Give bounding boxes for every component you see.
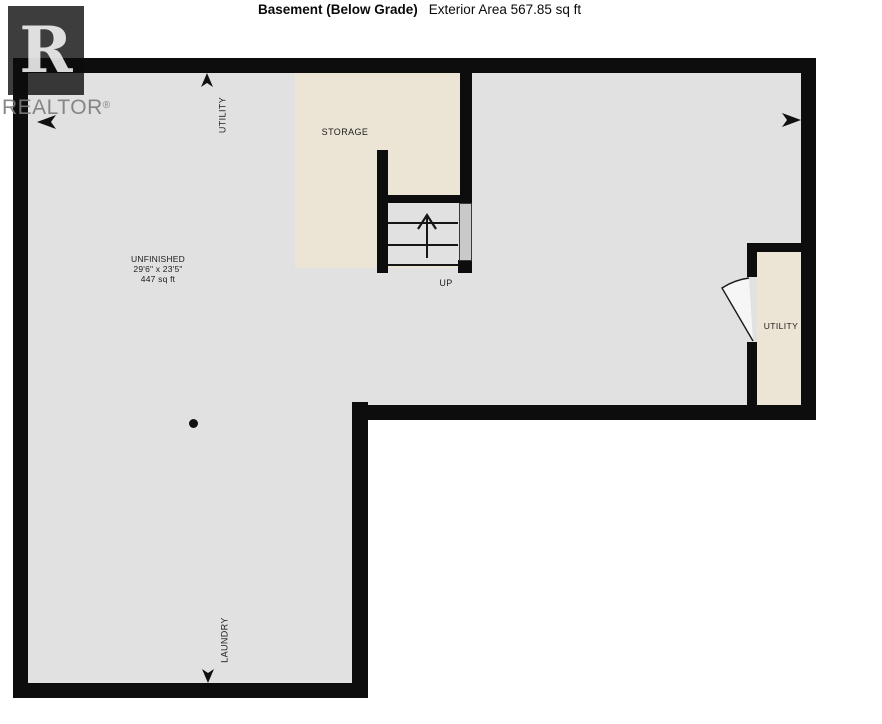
label-utility-right: UTILITY: [759, 321, 803, 332]
label-unfinished: UNFINISHED 29'6" x 23'5" 447 sq ft: [93, 254, 223, 284]
plan-level-title: Basement (Below Grade): [258, 2, 418, 17]
unfinished-room-name: UNFINISHED: [93, 254, 223, 264]
unfinished-room-area: 447 sq ft: [93, 274, 223, 284]
door-swing-icon: [690, 260, 810, 360]
realtor-logo: R: [8, 6, 84, 95]
floorplan-canvas: { "title": { "name": "Basement (Below Gr…: [0, 0, 882, 724]
wall-right: [801, 58, 816, 420]
label-stairs-up: UP: [431, 278, 461, 289]
realtor-brand-text: REALTOR: [2, 96, 103, 119]
wall-bottom: [13, 683, 368, 698]
wall-notch-vertical: [352, 402, 368, 698]
stair-tread-line: [388, 264, 458, 266]
exterior-area-value: Exterior Area 567.85 sq ft: [429, 2, 581, 17]
label-storage: STORAGE: [305, 127, 385, 138]
wall-storage-right: [460, 58, 472, 198]
wall-stair-left: [377, 150, 388, 273]
realtor-logo-letter: R: [19, 8, 72, 94]
wall-top: [13, 58, 816, 73]
support-column-dot: [189, 419, 198, 428]
arrow-down-icon: [200, 668, 216, 684]
label-utility-top: UTILITY: [218, 97, 229, 133]
arrow-up-icon: [199, 72, 215, 88]
wall-left: [13, 58, 28, 698]
stair-railing: [459, 203, 472, 261]
unfinished-room-dimensions: 29'6" x 23'5": [93, 264, 223, 274]
wall-stair-top: [377, 195, 472, 203]
wall-notch-horizontal: [352, 405, 816, 420]
page-title: Basement (Below Grade) Exterior Area 567…: [258, 2, 581, 17]
wall-stair-post: [458, 260, 472, 273]
label-laundry: LAUNDRY: [220, 617, 231, 663]
registered-trademark-symbol: ®: [103, 100, 111, 111]
stairs-up-arrow-icon: [413, 209, 441, 263]
arrow-right-icon: [780, 112, 802, 128]
realtor-wordmark: REALTOR®: [2, 96, 111, 120]
